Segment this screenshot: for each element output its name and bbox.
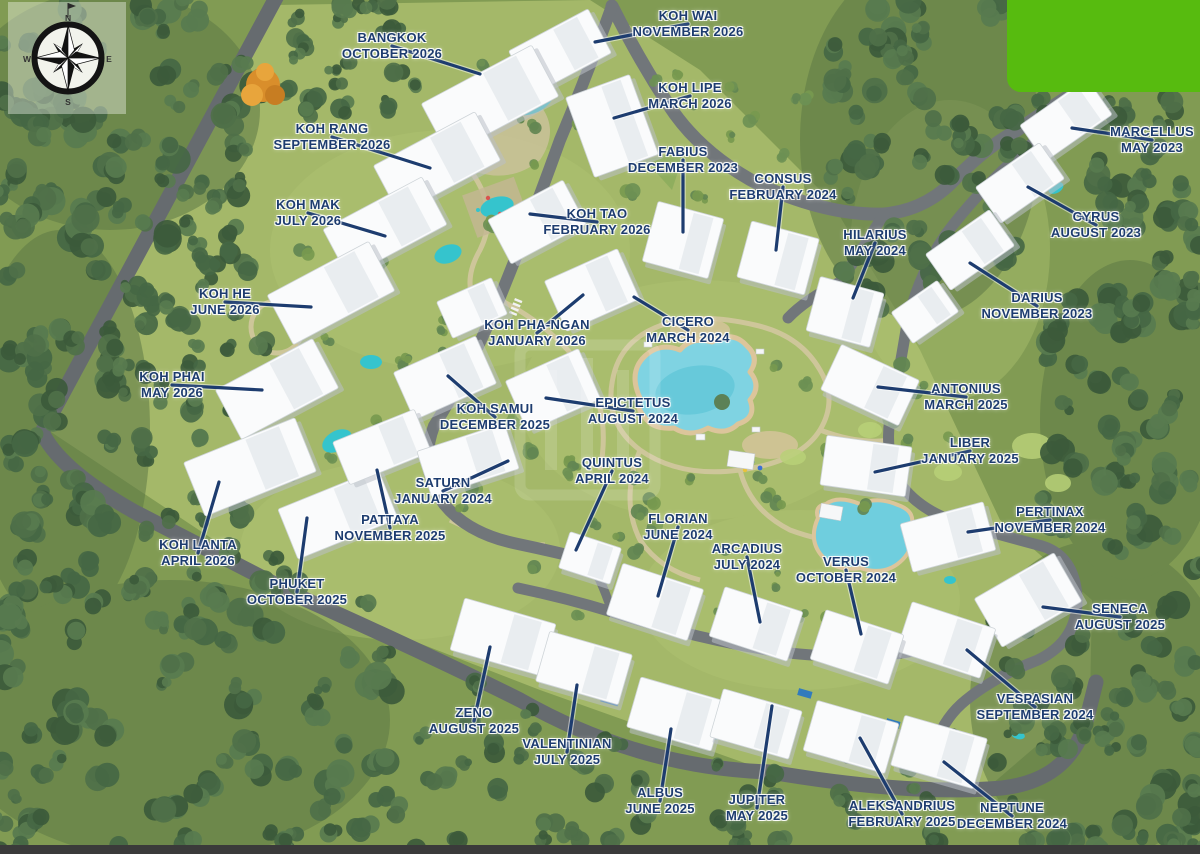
highlight-overlay [1007, 0, 1200, 92]
compass-south-label: S [65, 97, 71, 107]
compass-east-label: E [106, 54, 112, 64]
compass-west-label: W [23, 54, 32, 64]
compass-north-label: N [65, 13, 71, 23]
compass-rose: N E S W [8, 2, 126, 114]
site-map: N E S W BANGKOKOCTOBER 2026KOH WAINOVEMB… [0, 0, 1200, 854]
bottom-bar [0, 845, 1200, 854]
map-canvas: N E S W [0, 0, 1200, 854]
